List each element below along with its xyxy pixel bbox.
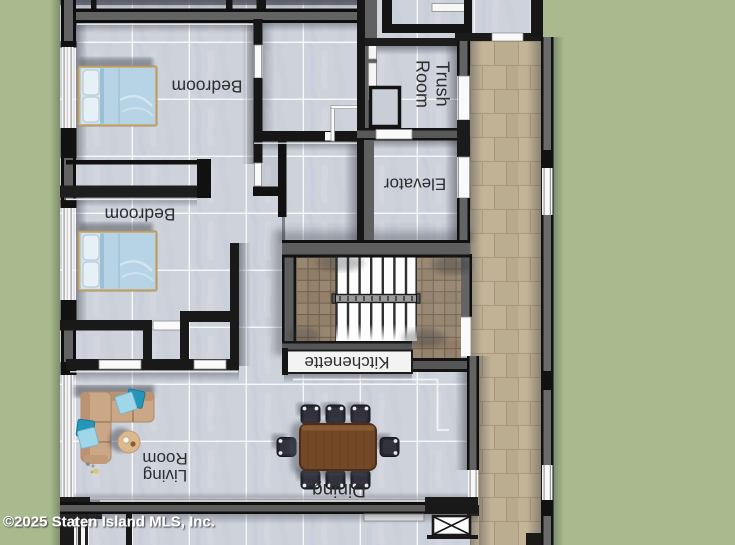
svg-text:Room: Room: [142, 449, 187, 468]
svg-text:Kitchenette: Kitchenette: [304, 353, 389, 372]
svg-text:©2025 Staten Island MLS, Inc.: ©2025 Staten Island MLS, Inc.: [3, 514, 215, 531]
svg-text:Bedroom: Bedroom: [171, 76, 242, 96]
svg-text:Room: Room: [412, 60, 432, 108]
svg-text:Elevator: Elevator: [383, 175, 446, 194]
svg-text:Bedroom: Bedroom: [104, 204, 175, 224]
svg-text:Trush: Trush: [432, 61, 452, 106]
svg-text:Dining: Dining: [312, 479, 366, 500]
